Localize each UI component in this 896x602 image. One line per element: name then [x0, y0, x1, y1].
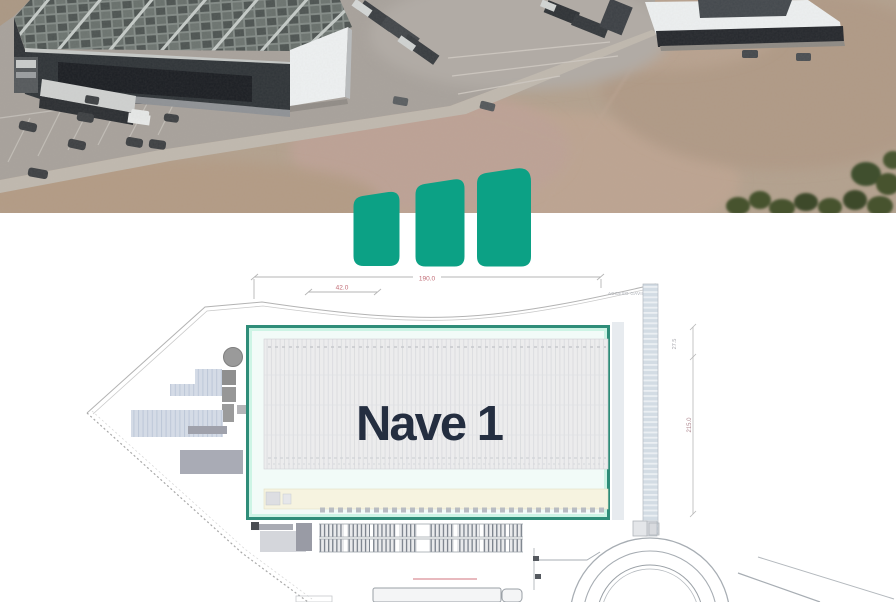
- svg-text:Nave 1: Nave 1: [356, 397, 503, 451]
- svg-text:42.0: 42.0: [336, 285, 349, 292]
- svg-text:27.5: 27.5: [672, 339, 678, 350]
- svg-text:215.0: 215.0: [687, 417, 693, 433]
- svg-text:190.0: 190.0: [419, 276, 436, 283]
